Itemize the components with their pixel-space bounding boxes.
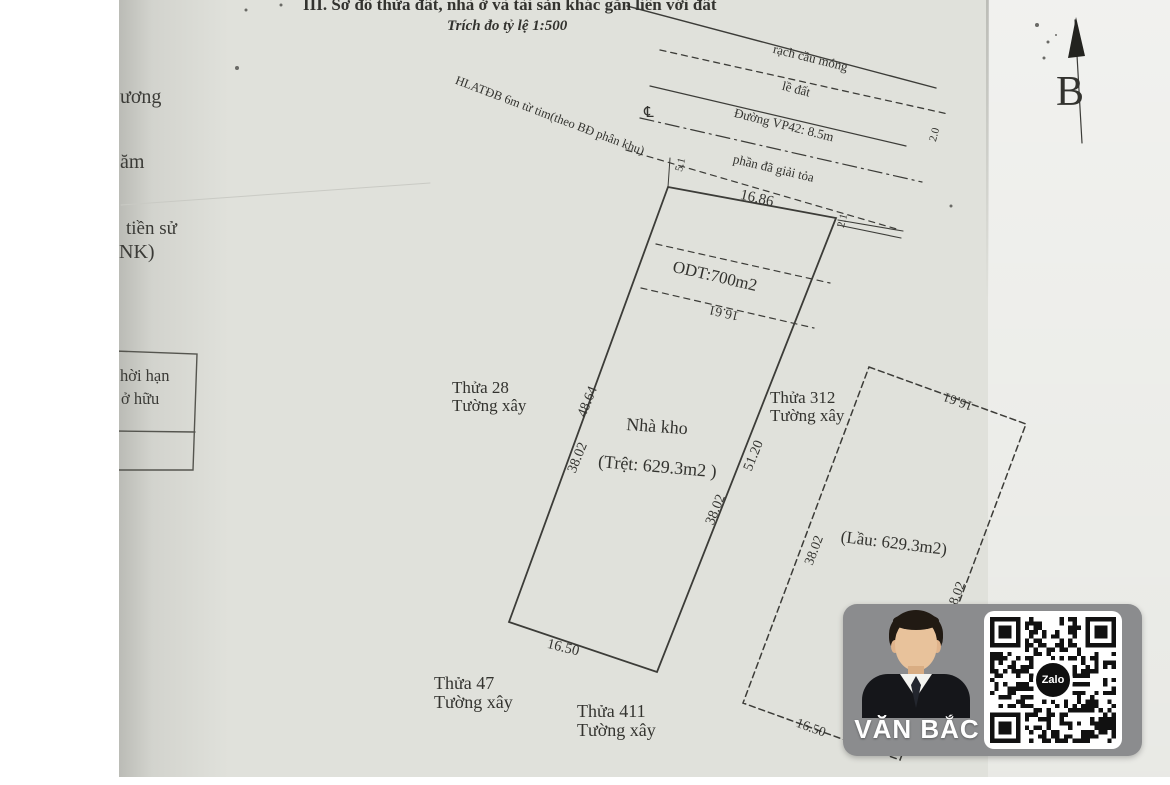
margin-box-row2: ở hữu bbox=[121, 389, 159, 409]
portrait-fringe bbox=[893, 614, 939, 630]
margin-fragment-1: ương bbox=[120, 86, 161, 109]
neighbor-411-name: Thửa 411 bbox=[577, 702, 656, 721]
building-label: Nhà kho bbox=[626, 415, 689, 438]
compass-label: B bbox=[1056, 70, 1084, 114]
neighbor-312: Thửa 312 Tường xây bbox=[770, 389, 844, 425]
paper-crease bbox=[121, 183, 430, 205]
zalo-qr-code: Zalo bbox=[984, 611, 1122, 749]
scale-note: Trích đo tỷ lệ 1:500 bbox=[447, 19, 567, 35]
left-white-margin bbox=[0, 0, 119, 785]
margin-fragment-4: NK) bbox=[119, 241, 155, 264]
realtor-watermark-panel: VĂN BẮC Zalo bbox=[843, 604, 1142, 756]
neighbor-411-wall: Tường xây bbox=[577, 721, 656, 740]
neighbor-411: Thửa 411 Tường xây bbox=[577, 702, 656, 740]
neighbor-47: Thửa 47 Tường xây bbox=[434, 674, 513, 712]
margin-box-row1: hời hạn bbox=[120, 366, 170, 386]
realtor-name: VĂN BẮC bbox=[849, 714, 985, 745]
centerline-symbol: ℄ bbox=[644, 106, 654, 122]
neighbor-47-wall: Tường xây bbox=[434, 693, 513, 712]
realtor-portrait bbox=[858, 610, 974, 718]
north-arrow-head bbox=[1068, 17, 1085, 58]
neighbor-312-name: Thửa 312 bbox=[770, 389, 844, 407]
neighbor-312-wall: Tường xây bbox=[770, 407, 844, 425]
zalo-logo-badge: Zalo bbox=[1033, 660, 1073, 700]
zalo-logo-text: Zalo bbox=[1042, 674, 1065, 686]
margin-fragment-3: tiền sử bbox=[126, 218, 177, 240]
neighbor-47-name: Thửa 47 bbox=[434, 674, 513, 693]
neighbor-28-wall: Tường xây bbox=[452, 397, 526, 415]
margin-fragment-2: ăm bbox=[120, 151, 144, 174]
section-title: III. Sơ đồ thửa đất, nhà ở và tài sản kh… bbox=[303, 0, 717, 14]
neighbor-28: Thửa 28 Tường xây bbox=[452, 379, 526, 415]
scanned-document-page: III. Sơ đồ thửa đất, nhà ở và tài sản kh… bbox=[0, 0, 1170, 785]
neighbor-28-name: Thửa 28 bbox=[452, 379, 526, 397]
bottom-white-margin bbox=[0, 777, 1170, 785]
